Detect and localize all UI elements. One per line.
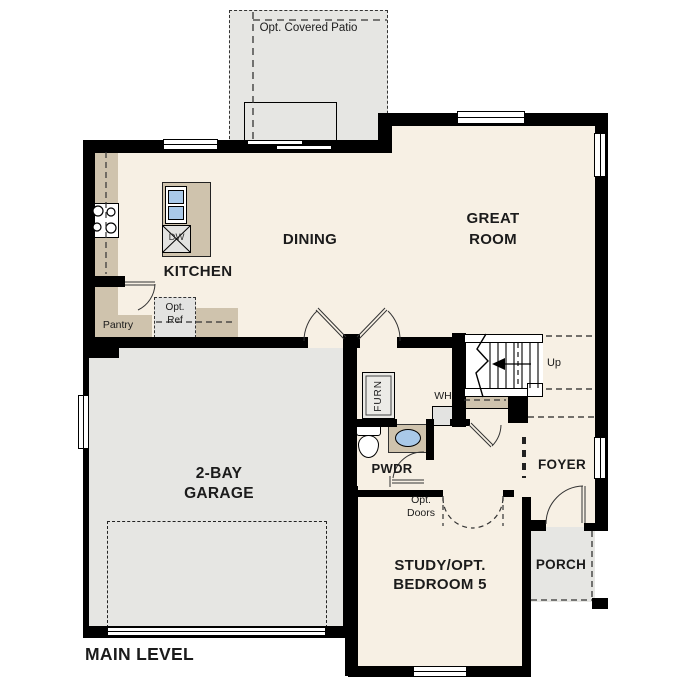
kitchen-right-counter (196, 308, 238, 338)
wall-step (378, 113, 392, 153)
furnace-label: FURN (373, 380, 385, 412)
wall-frontdoor-left-stub (527, 520, 546, 531)
study-line1: STUDY/OPT. (364, 556, 516, 575)
wall-kitchen-top (83, 140, 392, 153)
wall-closet-stub (450, 419, 470, 426)
opt-ref-label: Opt. Ref (154, 301, 196, 327)
study-line2: BEDROOM 5 (364, 575, 516, 594)
sink-basin-top (168, 190, 184, 204)
pantry-label: Pantry (95, 319, 141, 331)
patio-inner-rect (244, 102, 337, 143)
foyer-label: FOYER (530, 457, 594, 473)
study-label: STUDY/OPT. BEDROOM 5 (364, 556, 516, 594)
wall-frontdoor-right-stub (584, 523, 608, 531)
garage-line1: 2-BAY (159, 464, 279, 484)
kitchen-label: KITCHEN (153, 263, 243, 280)
great-room-line1: GREAT (443, 208, 543, 229)
great-room-line2: ROOM (443, 229, 543, 250)
sink-basin-bottom (168, 206, 184, 220)
water-heater-label: WH (428, 390, 458, 402)
wall-study-left (345, 486, 358, 676)
garage-window (78, 395, 89, 449)
dishwasher-label: DW (162, 233, 191, 244)
porch-label: PORCH (530, 557, 592, 573)
furnace-box: FURN (362, 372, 395, 419)
wall-stairs-left (452, 333, 466, 427)
dining-label: DINING (265, 231, 355, 248)
stair-top-landing-edge (464, 334, 543, 343)
powder-label: PWDR (366, 462, 418, 477)
stair-newel (527, 383, 543, 397)
opt-doors-line1: Opt. (398, 494, 444, 507)
main-level-title: MAIN LEVEL (85, 644, 194, 664)
wall-powder-right (426, 419, 434, 460)
study-window (413, 666, 467, 677)
opt-doors-label: Opt. Doors (398, 494, 444, 520)
opt-ref-line2: Ref (154, 314, 196, 327)
floor-plan: FURN (0, 0, 687, 687)
greatroom-top-window (457, 111, 525, 124)
garage-door-track-dashed (107, 521, 327, 628)
wall-pantry-stub (83, 276, 125, 287)
opt-ref-line1: Opt. (154, 301, 196, 314)
foyer-window (594, 437, 606, 479)
kitchen-window (163, 139, 218, 150)
stairs-up-label: Up (541, 357, 567, 370)
patio-label: Opt. Covered Patio (229, 22, 388, 35)
wall-left-exterior (83, 140, 95, 348)
great-room-label: GREAT ROOM (443, 208, 543, 250)
wall-understair-chunk (508, 395, 528, 423)
wall-study-top-stub (503, 490, 514, 497)
garage-line2: GARAGE (159, 484, 279, 504)
opt-doors-line2: Doors (398, 507, 444, 520)
wall-porch-corner (592, 598, 608, 609)
greatroom-right-window (594, 133, 606, 177)
wall-garage-left (83, 348, 89, 634)
wall-under-furnace (351, 419, 397, 427)
garage-door (107, 627, 326, 636)
patio-slider-panel-2 (276, 145, 332, 150)
garage-label: 2-BAY GARAGE (159, 464, 279, 504)
powder-sink (395, 429, 421, 447)
